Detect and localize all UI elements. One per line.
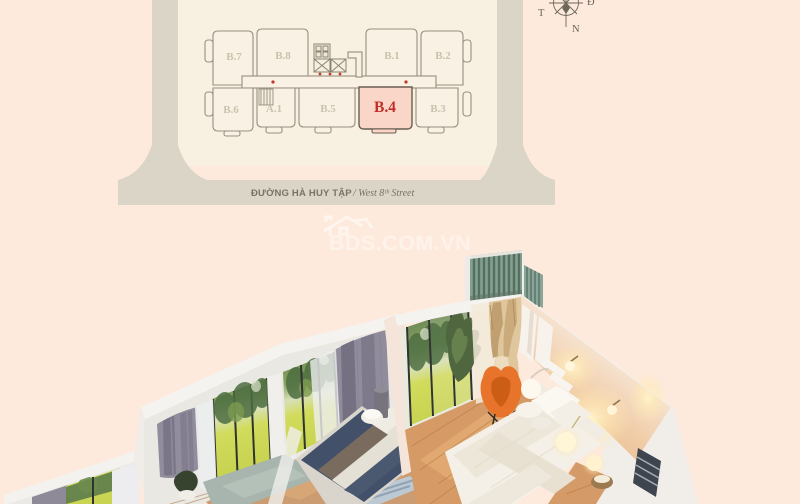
- svg-text:B.1: B.1: [384, 50, 400, 62]
- svg-text:B.8: B.8: [275, 50, 291, 62]
- svg-text:N: N: [572, 24, 580, 35]
- svg-text:BDS.COM.VN: BDS.COM.VN: [329, 231, 471, 255]
- svg-text:B.6: B.6: [223, 104, 239, 116]
- svg-text:T: T: [538, 8, 545, 19]
- svg-text:ĐƯỜNG HÀ HUY TẬP: ĐƯỜNG HÀ HUY TẬP: [251, 187, 352, 199]
- svg-text:Đ: Đ: [587, 0, 595, 8]
- svg-text:B.7: B.7: [226, 51, 242, 63]
- svg-text:B.5: B.5: [320, 103, 336, 115]
- svg-text:/ West 8ᵗʰ Street: / West 8ᵗʰ Street: [352, 188, 414, 199]
- svg-text:A.1: A.1: [266, 103, 282, 115]
- svg-text:B.3: B.3: [430, 103, 446, 115]
- svg-text:B.4: B.4: [374, 99, 396, 116]
- svg-text:B.2: B.2: [435, 50, 451, 62]
